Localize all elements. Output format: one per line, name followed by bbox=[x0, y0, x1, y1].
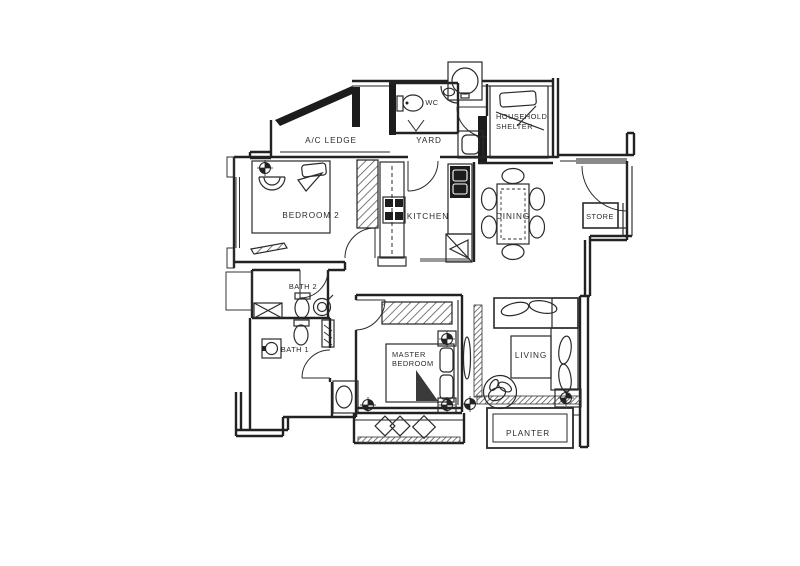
stove-icon bbox=[383, 197, 405, 223]
label-master-2: BEDROOM bbox=[392, 359, 434, 368]
louvre-door-icon bbox=[322, 320, 334, 347]
furniture bbox=[251, 62, 627, 448]
label-wc: WC bbox=[425, 98, 438, 107]
label-bedroom2: BEDROOM 2 bbox=[282, 211, 339, 220]
column-marker bbox=[439, 397, 455, 413]
label-ac-ledge: A/C LEDGE bbox=[305, 136, 357, 145]
window-lines bbox=[226, 157, 252, 310]
wc-toilet-icon bbox=[397, 95, 423, 111]
label-dining: DINING bbox=[496, 212, 530, 221]
label-master-1: MASTER bbox=[392, 350, 426, 359]
master-wardrobe bbox=[382, 302, 452, 324]
bedroom2-door-arc bbox=[345, 228, 375, 258]
label-planter: PLANTER bbox=[506, 429, 550, 438]
entrance-door-arc bbox=[582, 166, 627, 211]
label-living: LIVING bbox=[515, 351, 547, 360]
mirror-icon bbox=[464, 337, 471, 379]
planter-box bbox=[487, 408, 580, 448]
wall-lines bbox=[234, 78, 634, 447]
label-store: STORE bbox=[586, 212, 614, 221]
room-labels: A/C LEDGE WC YARD HOUSEHOLD SHELTER BEDR… bbox=[281, 98, 614, 438]
kitchen-corner-unit bbox=[446, 234, 472, 262]
kitchen-sink-icon bbox=[450, 166, 470, 198]
column-marker bbox=[462, 396, 478, 412]
bath1-sink-icon bbox=[262, 339, 281, 358]
label-yard: YARD bbox=[416, 136, 442, 145]
living-glass-wall-left bbox=[474, 305, 482, 397]
bedroom2-shelf-icon bbox=[251, 243, 287, 254]
vent-duct-icon bbox=[254, 303, 282, 318]
label-household-shelter-2: SHELTER bbox=[496, 122, 533, 131]
label-bath1: BATH 1 bbox=[281, 345, 309, 354]
yard-door-arc bbox=[408, 161, 438, 191]
column-marker bbox=[439, 331, 455, 347]
floor-plan-page: A/C LEDGE WC YARD HOUSEHOLD SHELTER BEDR… bbox=[0, 0, 800, 566]
wc-door-icon bbox=[408, 120, 424, 131]
bay-window-sill bbox=[358, 437, 460, 443]
floor-plan-drawing: A/C LEDGE WC YARD HOUSEHOLD SHELTER BEDR… bbox=[0, 0, 800, 566]
label-household-shelter-1: HOUSEHOLD bbox=[496, 112, 547, 121]
bath2-sink-icon bbox=[314, 295, 334, 316]
column-marker bbox=[360, 397, 376, 413]
bay-window-cushions bbox=[375, 416, 435, 439]
column-marker bbox=[257, 160, 273, 176]
label-bath2: BATH 2 bbox=[289, 282, 317, 291]
master-door-arc bbox=[356, 300, 385, 330]
bath1-door-arc bbox=[302, 350, 330, 378]
bedroom2-wardrobe bbox=[357, 160, 378, 228]
bath1-toilet-icon bbox=[294, 320, 309, 345]
label-kitchen: KITCHEN bbox=[407, 212, 449, 221]
vanity-basin-icon bbox=[333, 381, 358, 413]
bedroom2-fan-icon bbox=[259, 177, 285, 190]
store-wall bbox=[618, 203, 627, 237]
